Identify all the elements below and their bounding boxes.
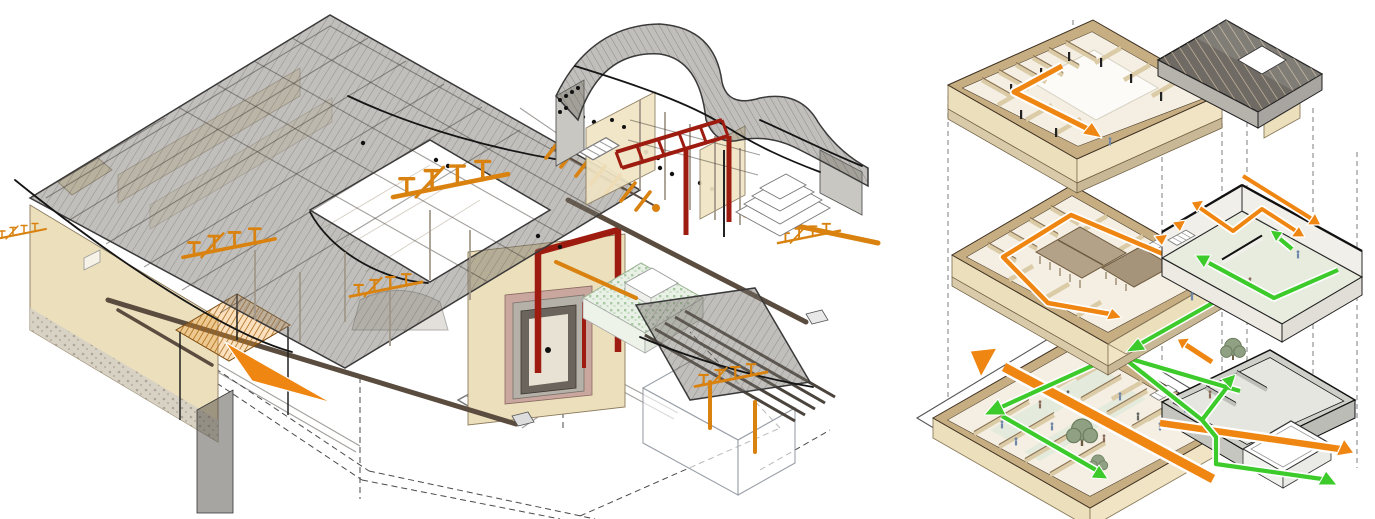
tree [1221,338,1246,360]
cutaway-axonometric [0,15,878,519]
section-cut-plane [197,390,233,513]
figure-canvas [0,0,1375,519]
exploded-axonometric [917,20,1362,519]
axonometric-diagrams [0,0,1375,519]
level-middle [952,176,1362,375]
